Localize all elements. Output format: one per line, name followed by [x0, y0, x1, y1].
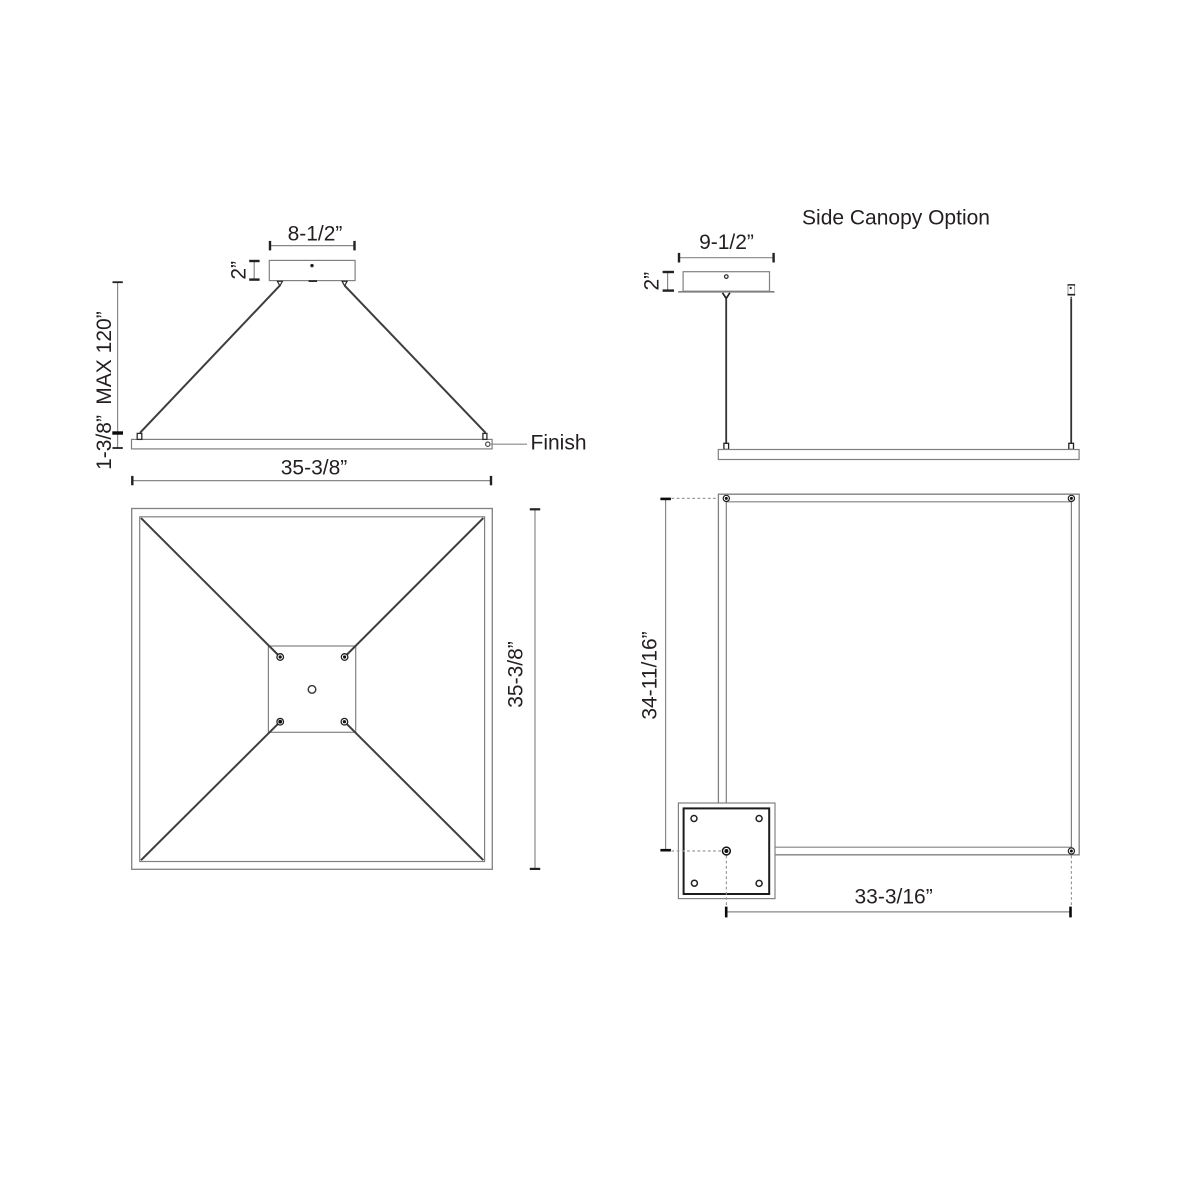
svg-text:8-1/2”: 8-1/2”	[288, 223, 343, 246]
svg-text:MAX 120”: MAX 120”	[93, 311, 116, 404]
svg-text:35-3/8”: 35-3/8”	[281, 457, 348, 480]
svg-text:9-1/2”: 9-1/2”	[699, 231, 754, 254]
svg-text:Side Canopy Option: Side Canopy Option	[802, 207, 990, 230]
svg-text:2”: 2”	[641, 272, 664, 291]
svg-text:1-3/8”: 1-3/8”	[93, 415, 116, 470]
svg-text:Finish: Finish	[531, 432, 587, 455]
svg-text:35-3/8”: 35-3/8”	[505, 641, 528, 708]
svg-text:2”: 2”	[228, 261, 251, 280]
svg-text:33-3/16”: 33-3/16”	[854, 886, 932, 909]
svg-text:34-11/16”: 34-11/16”	[639, 631, 662, 719]
